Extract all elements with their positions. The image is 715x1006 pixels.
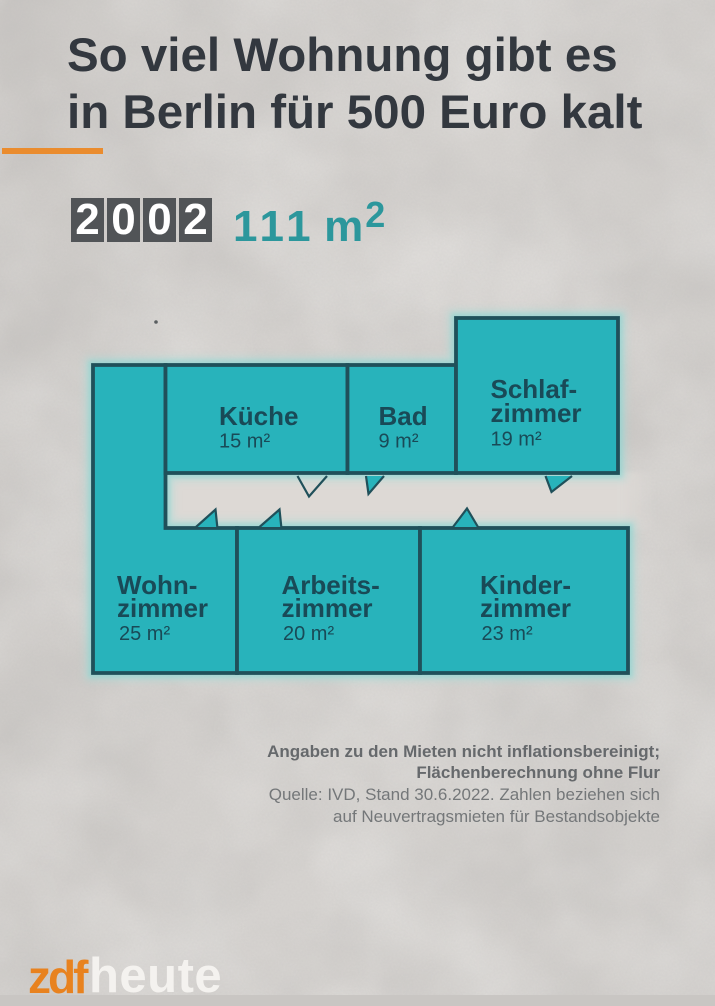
svg-text:zimmer: zimmer bbox=[117, 593, 208, 623]
svg-text:9 m²: 9 m² bbox=[379, 431, 419, 453]
svg-text:zimmer: zimmer bbox=[491, 398, 582, 428]
svg-text:Küche: Küche bbox=[219, 401, 298, 431]
svg-text:19 m²: 19 m² bbox=[491, 429, 542, 451]
svg-text:Bad: Bad bbox=[379, 401, 428, 431]
svg-text:zimmer: zimmer bbox=[282, 593, 373, 623]
svg-text:25 m²: 25 m² bbox=[119, 623, 170, 645]
svg-text:23 m²: 23 m² bbox=[482, 623, 533, 645]
svg-text:15 m²: 15 m² bbox=[219, 431, 270, 453]
svg-text:20 m²: 20 m² bbox=[283, 623, 334, 645]
svg-text:zimmer: zimmer bbox=[480, 593, 571, 623]
